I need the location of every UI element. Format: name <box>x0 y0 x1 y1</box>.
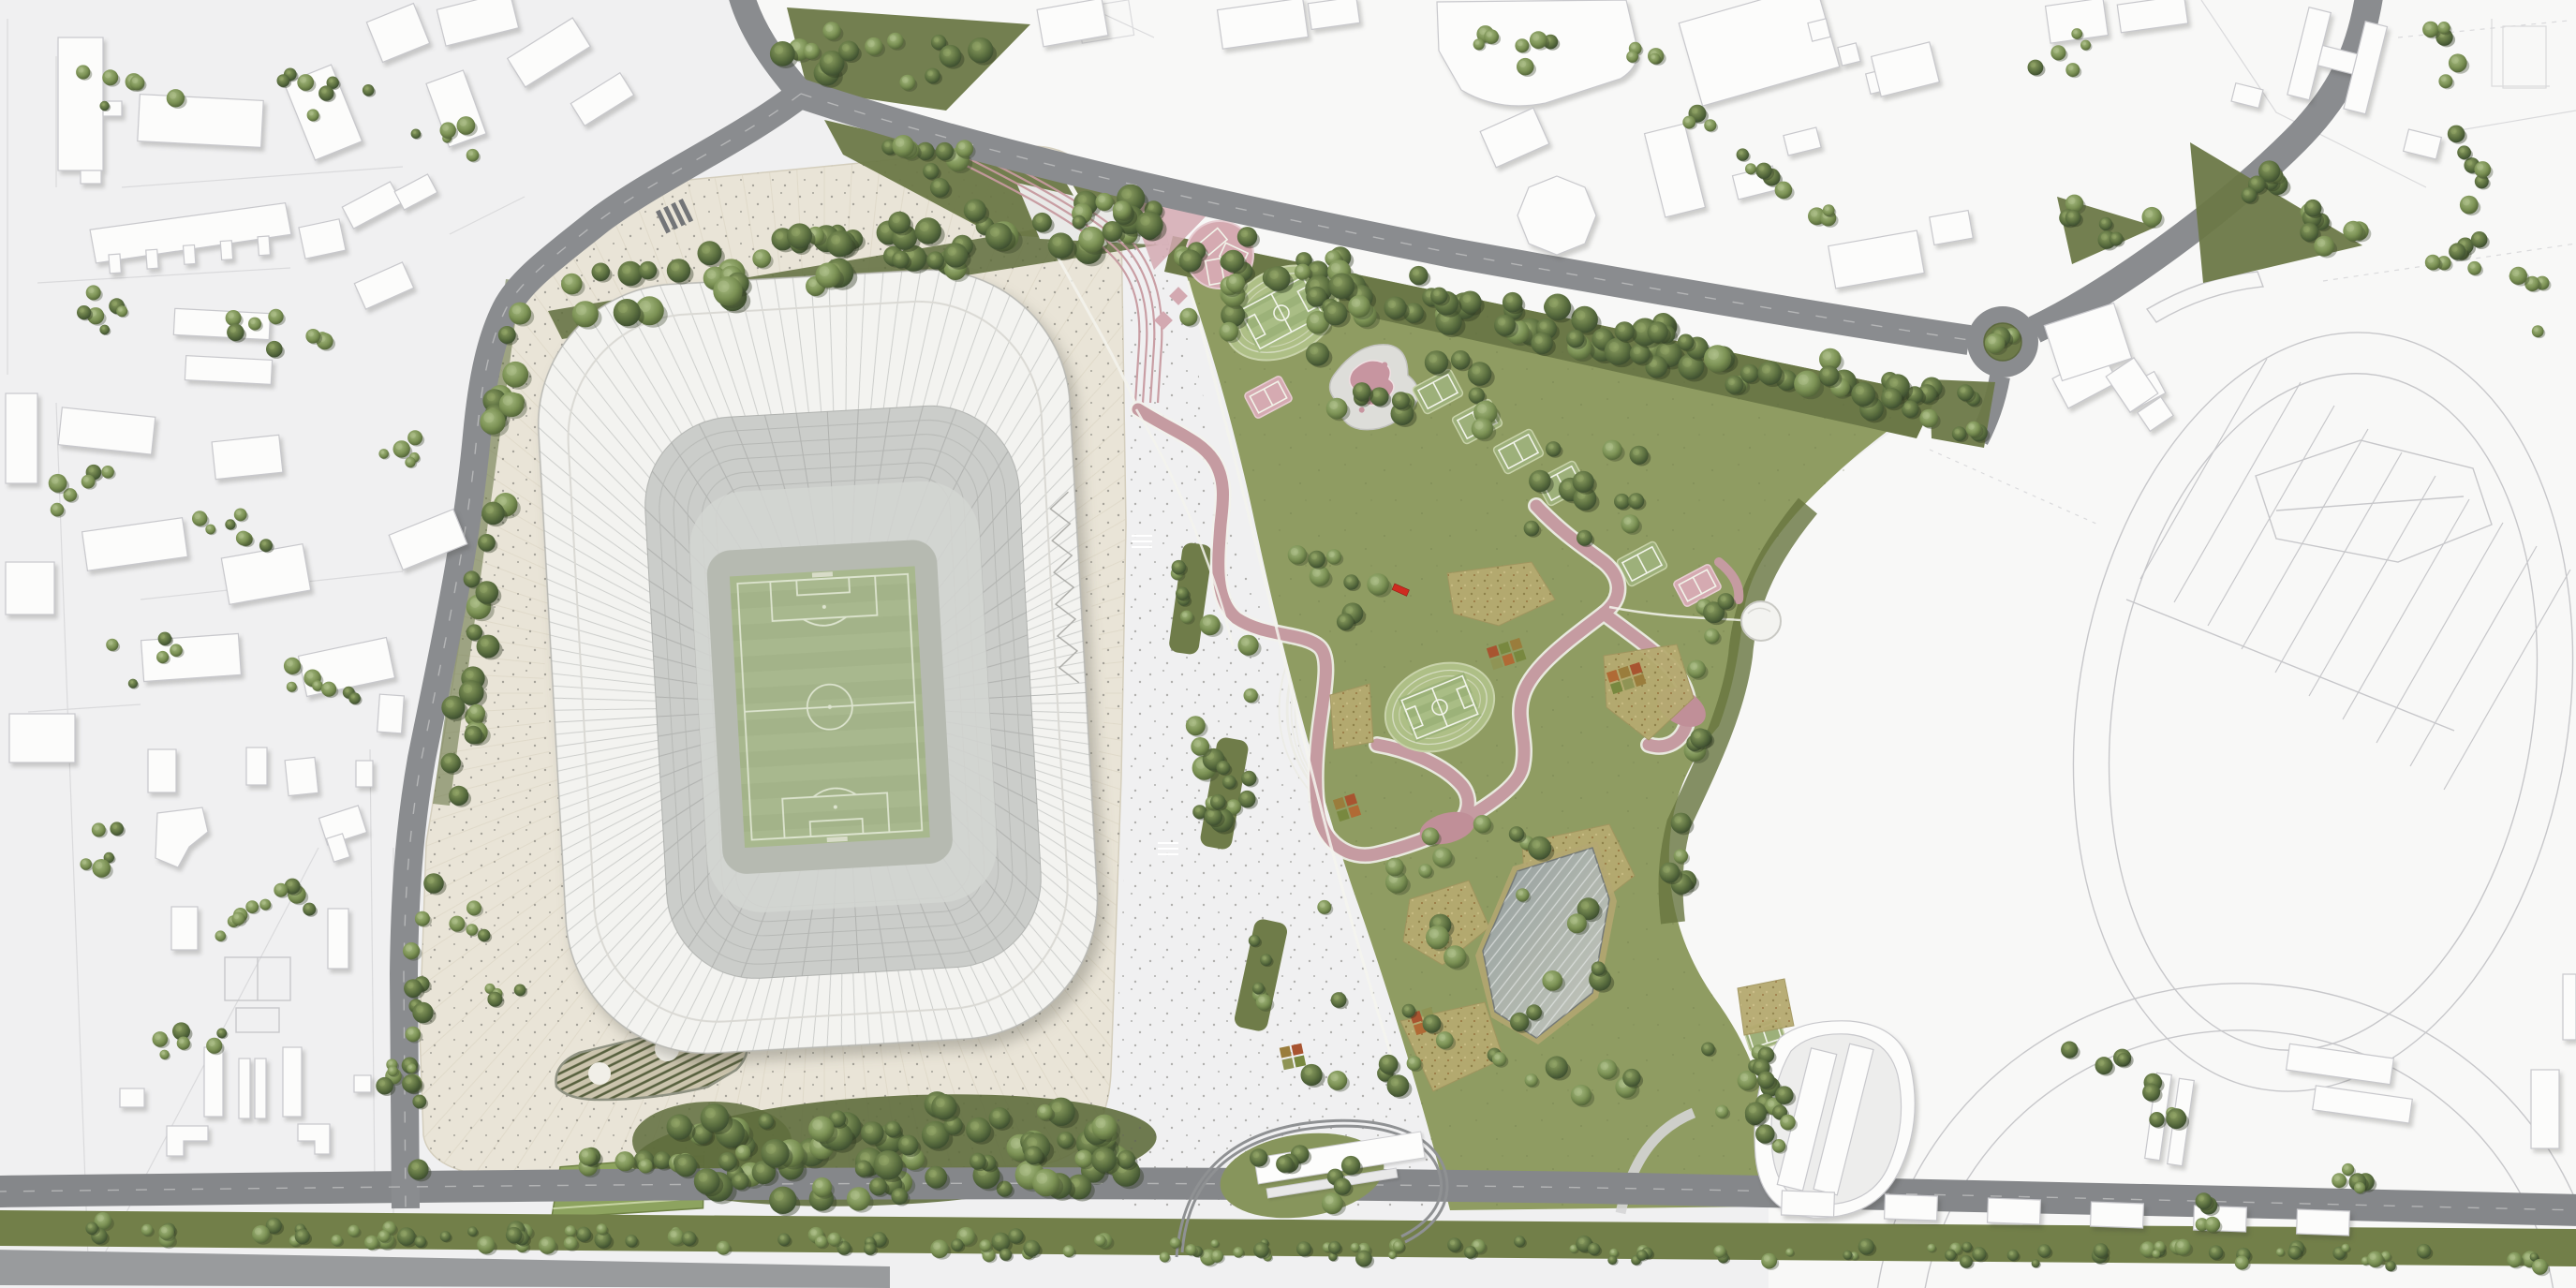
octagonal-hall <box>1517 176 1596 255</box>
screenshot-stage: Aerial masterplan rendering of a stadium… <box>0 0 2576 1288</box>
football-pitch: Football pitch with white markings <box>730 566 930 848</box>
circular-lookout-plaza <box>1741 601 1781 641</box>
site-plan-rendering: Aerial masterplan rendering of a stadium… <box>0 0 2576 1288</box>
